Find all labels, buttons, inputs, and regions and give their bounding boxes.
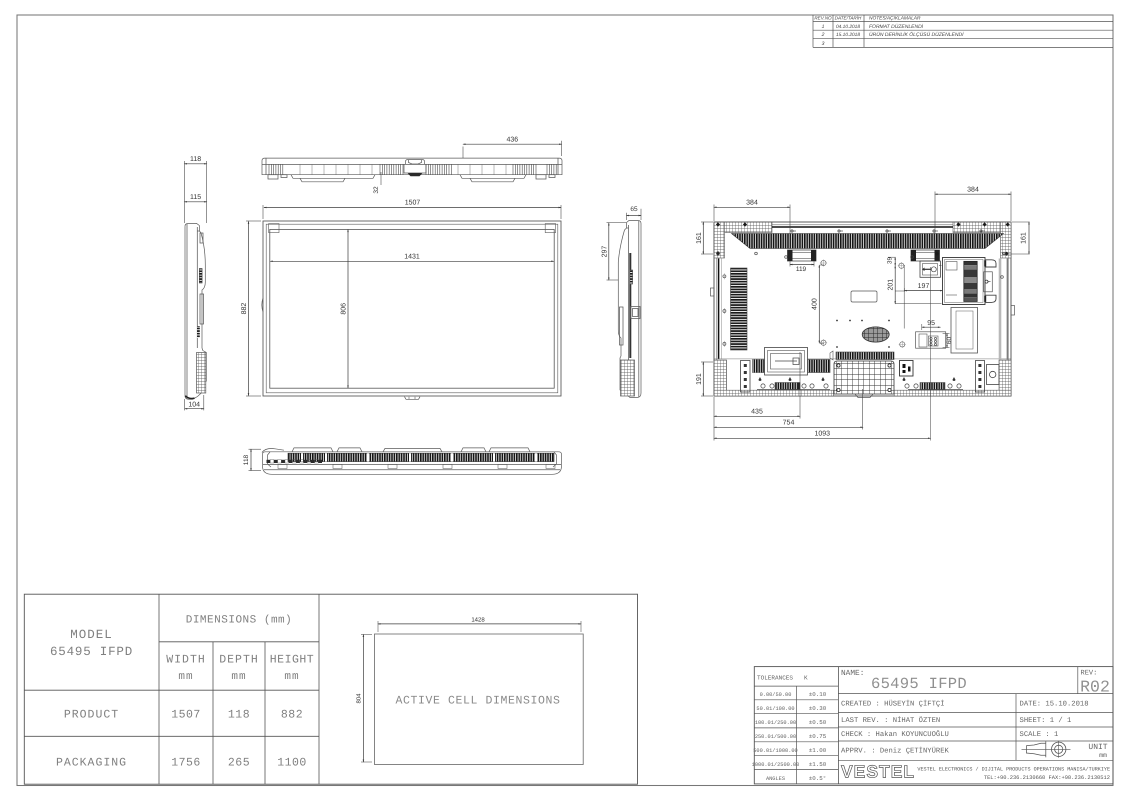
- svg-text:60: 60: [946, 337, 953, 345]
- svg-text:±0.10: ±0.10: [809, 691, 827, 698]
- svg-text:SCALE : 1: SCALE : 1: [1020, 731, 1059, 739]
- svg-text:CREATED : HÜSEYİN ÇİFTÇİ: CREATED : HÜSEYİN ÇİFTÇİ: [841, 700, 945, 709]
- svg-text:384: 384: [746, 200, 758, 207]
- svg-text:R02: R02: [1080, 678, 1110, 697]
- svg-text:118: 118: [190, 156, 201, 163]
- svg-text:NAME:: NAME:: [841, 669, 864, 678]
- svg-text:DATE: 15.10.2018: DATE: 15.10.2018: [1020, 701, 1089, 709]
- svg-text:VESTEL: VESTEL: [841, 762, 915, 782]
- svg-text:3: 3: [822, 41, 825, 47]
- svg-text:250.01/500.00: 250.01/500.00: [755, 734, 796, 740]
- svg-text:201: 201: [888, 279, 895, 291]
- svg-text:±0.30: ±0.30: [809, 705, 827, 712]
- svg-text:265: 265: [228, 757, 250, 770]
- svg-text:SHEET: 1 / 1: SHEET: 1 / 1: [1020, 716, 1072, 725]
- svg-text:DEPTH: DEPTH: [219, 654, 259, 667]
- svg-text:HEIGHT: HEIGHT: [270, 654, 314, 667]
- svg-text:2: 2: [821, 32, 825, 38]
- svg-text:104: 104: [188, 402, 200, 409]
- svg-text:882: 882: [241, 303, 248, 315]
- svg-text:FORMAT DÜZENLENDİ: FORMAT DÜZENLENDİ: [869, 23, 924, 30]
- svg-text:MODEL: MODEL: [70, 628, 113, 642]
- svg-text:VESTEL ELECTRONICS / DIJITAL P: VESTEL ELECTRONICS / DIJITAL PRODUCTS OP…: [917, 767, 1110, 773]
- svg-text:1093: 1093: [814, 431, 830, 438]
- svg-text:DATE/TARİH: DATE/TARİH: [835, 16, 862, 21]
- svg-text:161: 161: [1021, 232, 1028, 244]
- svg-text:191: 191: [696, 373, 703, 385]
- svg-text:TOLERANCES: TOLERANCES: [757, 675, 793, 682]
- svg-text:±1.00: ±1.00: [809, 747, 827, 754]
- svg-text:LAST REV. : NİHAT ÖZTEN: LAST REV. : NİHAT ÖZTEN: [841, 716, 940, 725]
- svg-text:1: 1: [822, 24, 825, 30]
- svg-text:50.01/100.00: 50.01/100.00: [756, 706, 794, 712]
- svg-text:39: 39: [886, 257, 893, 264]
- svg-text:WIDTH: WIDTH: [166, 654, 206, 667]
- svg-text:±0.75: ±0.75: [809, 733, 827, 740]
- svg-text:±1.50: ±1.50: [809, 761, 827, 768]
- svg-text:CHECK : Hakan KOYUNCUOĞLU: CHECK : Hakan KOYUNCUOĞLU: [841, 730, 949, 739]
- svg-text:DIMENSIONS (mm): DIMENSIONS (mm): [186, 615, 293, 627]
- svg-text:161: 161: [696, 232, 703, 244]
- svg-text:mm: mm: [178, 671, 193, 683]
- svg-text:±0.50: ±0.50: [809, 719, 827, 726]
- svg-text:1507: 1507: [405, 200, 421, 207]
- svg-text:65495 IFPD: 65495 IFPD: [871, 675, 967, 693]
- svg-text:297: 297: [601, 246, 608, 258]
- svg-text:TEL:+90.236.2130660 FAX:+90.23: TEL:+90.236.2130660 FAX:+90.236.2130512: [984, 775, 1110, 781]
- svg-text:04.10.2018: 04.10.2018: [836, 24, 860, 30]
- svg-text:mm: mm: [231, 671, 246, 683]
- svg-text:NOTES/AÇIKLAMALAR: NOTES/AÇIKLAMALAR: [869, 16, 921, 22]
- svg-text:804: 804: [356, 693, 363, 704]
- svg-text:1507: 1507: [171, 709, 201, 722]
- svg-text:806: 806: [341, 303, 348, 315]
- svg-text:882: 882: [281, 709, 303, 722]
- svg-text:118: 118: [243, 454, 250, 465]
- svg-text:754: 754: [783, 420, 795, 427]
- svg-text:119: 119: [796, 266, 807, 273]
- svg-text:ACTIVE CELL DIMENSIONS: ACTIVE CELL DIMENSIONS: [395, 695, 560, 708]
- svg-text:1000.01/2500.00: 1000.01/2500.00: [752, 762, 800, 768]
- svg-text:384: 384: [967, 186, 979, 193]
- svg-text:435: 435: [751, 409, 763, 416]
- svg-text:ÜRÜN DERİNLİK ÖLÇÜSÜ DÜZENLEND: ÜRÜN DERİNLİK ÖLÇÜSÜ DÜZENLENDİ: [869, 31, 964, 38]
- svg-text:118: 118: [228, 709, 250, 722]
- svg-text:15.10.2018: 15.10.2018: [836, 32, 860, 38]
- svg-text:95: 95: [927, 320, 935, 327]
- svg-text:500.01/1000.00: 500.01/1000.00: [753, 748, 798, 754]
- svg-text:±0.5°: ±0.5°: [809, 775, 826, 782]
- svg-text:1428: 1428: [471, 617, 485, 624]
- svg-text:PRODUCT: PRODUCT: [64, 709, 119, 722]
- svg-text:K: K: [804, 675, 808, 682]
- svg-text:436: 436: [506, 136, 518, 143]
- svg-text:197: 197: [918, 283, 930, 290]
- svg-text:REV:: REV:: [1081, 670, 1098, 678]
- svg-text:115: 115: [190, 194, 201, 201]
- svg-text:32: 32: [373, 186, 380, 194]
- svg-text:ANGLES: ANGLES: [766, 776, 785, 782]
- svg-text:100.01/250.00: 100.01/250.00: [755, 720, 796, 726]
- svg-text:400: 400: [812, 298, 819, 310]
- svg-text:1756: 1756: [171, 757, 201, 770]
- svg-text:UNIT: UNIT: [1088, 743, 1107, 752]
- svg-text:mm: mm: [284, 671, 299, 683]
- svg-text:65: 65: [630, 206, 638, 213]
- svg-text:1431: 1431: [404, 253, 420, 260]
- svg-text:mm: mm: [1099, 752, 1107, 759]
- svg-text:APPRV. : Deniz ÇETİNYÜREK: APPRV. : Deniz ÇETİNYÜREK: [841, 747, 950, 756]
- svg-text:0.00/50.00: 0.00/50.00: [760, 692, 792, 698]
- svg-text:PACKAGING: PACKAGING: [56, 757, 127, 770]
- svg-text:1100: 1100: [277, 757, 307, 770]
- svg-text:65495 IFPD: 65495 IFPD: [50, 645, 133, 659]
- svg-text:REV.NO: REV.NO: [814, 16, 832, 21]
